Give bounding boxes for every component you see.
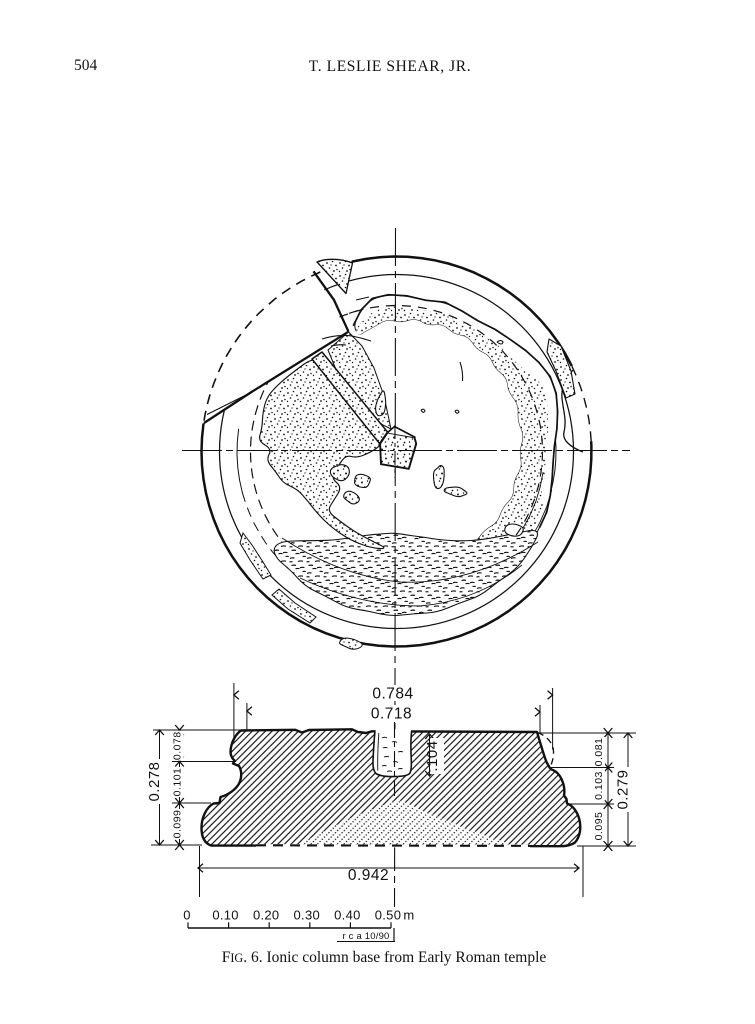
svg-text:T. LESLIE SHEAR, JR.: T. LESLIE SHEAR, JR. (309, 58, 471, 75)
svg-text:0.099: 0.099 (172, 810, 184, 839)
svg-text:m: m (403, 908, 414, 923)
svg-text:0.942: 0.942 (348, 867, 389, 884)
svg-text:0.10: 0.10 (212, 908, 239, 923)
svg-text:0.103: 0.103 (593, 771, 605, 800)
svg-text:0.50: 0.50 (375, 908, 402, 923)
svg-text:0.078: 0.078 (172, 731, 184, 760)
svg-text:0.278: 0.278 (146, 761, 163, 801)
svg-text:0.279: 0.279 (615, 769, 632, 809)
svg-text:504: 504 (74, 57, 98, 74)
svg-text:0.30: 0.30 (294, 908, 321, 923)
svg-text:0.718: 0.718 (371, 706, 412, 723)
svg-text:0.20: 0.20 (253, 908, 280, 923)
svg-text:FIG. 6. Ionic column base from: FIG. 6. Ionic column base from Early Rom… (222, 949, 547, 966)
svg-text:0.101: 0.101 (172, 768, 184, 797)
svg-text:0.095: 0.095 (593, 812, 605, 841)
svg-text:.104: .104 (424, 740, 441, 771)
svg-text:0: 0 (183, 908, 191, 923)
svg-text:0.40: 0.40 (334, 908, 361, 923)
svg-text:r c a 10/90: r c a 10/90 (342, 931, 389, 942)
svg-text:0.784: 0.784 (372, 686, 413, 703)
svg-text:0.081: 0.081 (593, 738, 605, 767)
